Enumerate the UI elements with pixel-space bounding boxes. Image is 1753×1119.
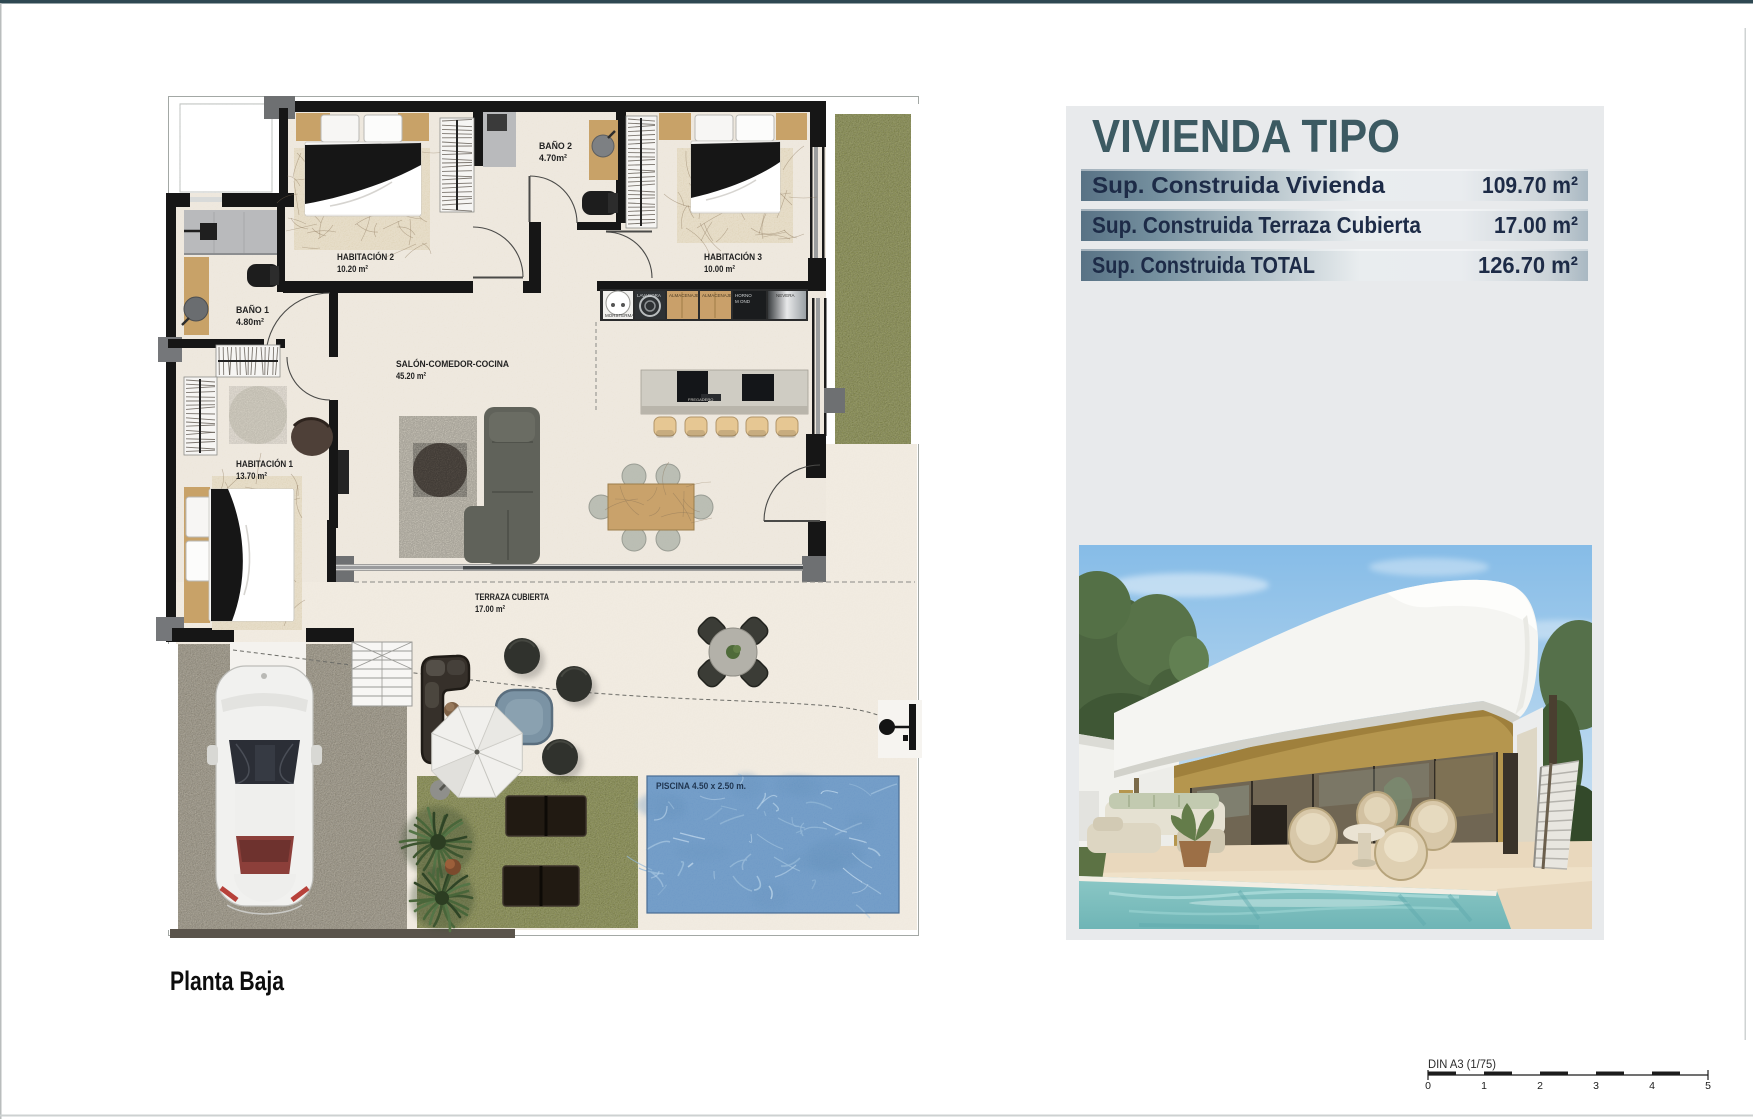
svg-text:BAÑO 2: BAÑO 2: [539, 141, 572, 151]
svg-text:ALMACENAJE: ALMACENAJE: [702, 293, 732, 298]
svg-text:5: 5: [1705, 1080, 1711, 1092]
svg-text:4: 4: [1649, 1080, 1655, 1092]
svg-text:HABITACIÓN 2: HABITACIÓN 2: [337, 251, 394, 262]
svg-text:109.70 m²: 109.70 m²: [1482, 172, 1578, 198]
svg-text:ALMACENAJE: ALMACENAJE: [669, 293, 699, 298]
svg-text:10.00 m²: 10.00 m²: [704, 264, 735, 274]
svg-text:1: 1: [1481, 1080, 1487, 1092]
svg-text:TERRAZA CUBIERTA: TERRAZA CUBIERTA: [475, 592, 549, 602]
svg-text:DIN A3 (1/75): DIN A3 (1/75): [1428, 1059, 1496, 1071]
svg-text:2: 2: [1537, 1080, 1543, 1092]
svg-text:VIVIENDA TIPO: VIVIENDA TIPO: [1092, 110, 1400, 162]
svg-text:BAÑO 1: BAÑO 1: [236, 305, 269, 315]
svg-text:10.20 m²: 10.20 m²: [337, 264, 368, 274]
svg-text:4.70m²: 4.70m²: [539, 153, 567, 163]
svg-text:HORNO: HORNO: [735, 293, 752, 298]
svg-text:45.20 m²: 45.20 m²: [396, 371, 426, 381]
svg-text:PISCINA 4.50 x 2.50 m.: PISCINA 4.50 x 2.50 m.: [656, 781, 746, 791]
svg-text:13.70 m²: 13.70 m²: [236, 471, 267, 481]
svg-text:17.00 m²: 17.00 m²: [1494, 212, 1578, 238]
svg-text:Planta Baja: Planta Baja: [170, 966, 285, 996]
svg-text:SALÓN-COMEDOR-COCINA: SALÓN-COMEDOR-COCINA: [396, 358, 509, 369]
svg-text:3: 3: [1593, 1080, 1599, 1092]
svg-text:Sup. Construida Vivienda: Sup. Construida Vivienda: [1092, 172, 1386, 198]
svg-text:0: 0: [1425, 1080, 1431, 1092]
svg-text:M OND: M OND: [735, 299, 751, 304]
svg-text:LAVADORA: LAVADORA: [637, 293, 661, 298]
svg-text:MORSTERMA: MORSTERMA: [605, 313, 634, 318]
svg-text:HABITACIÓN 3: HABITACIÓN 3: [704, 251, 762, 262]
svg-text:126.70 m²: 126.70 m²: [1478, 252, 1578, 278]
svg-text:17.00 m²: 17.00 m²: [475, 604, 505, 614]
svg-text:NEVERA: NEVERA: [776, 293, 795, 298]
svg-text:4.80m²: 4.80m²: [236, 317, 264, 327]
svg-text:FREGADERO: FREGADERO: [688, 397, 713, 402]
svg-text:Sup. Construida Terraza Cubier: Sup. Construida Terraza Cubierta: [1092, 212, 1422, 238]
svg-text:Sup. Construida TOTAL: Sup. Construida TOTAL: [1092, 252, 1315, 278]
svg-text:HABITACIÓN 1: HABITACIÓN 1: [236, 458, 293, 469]
